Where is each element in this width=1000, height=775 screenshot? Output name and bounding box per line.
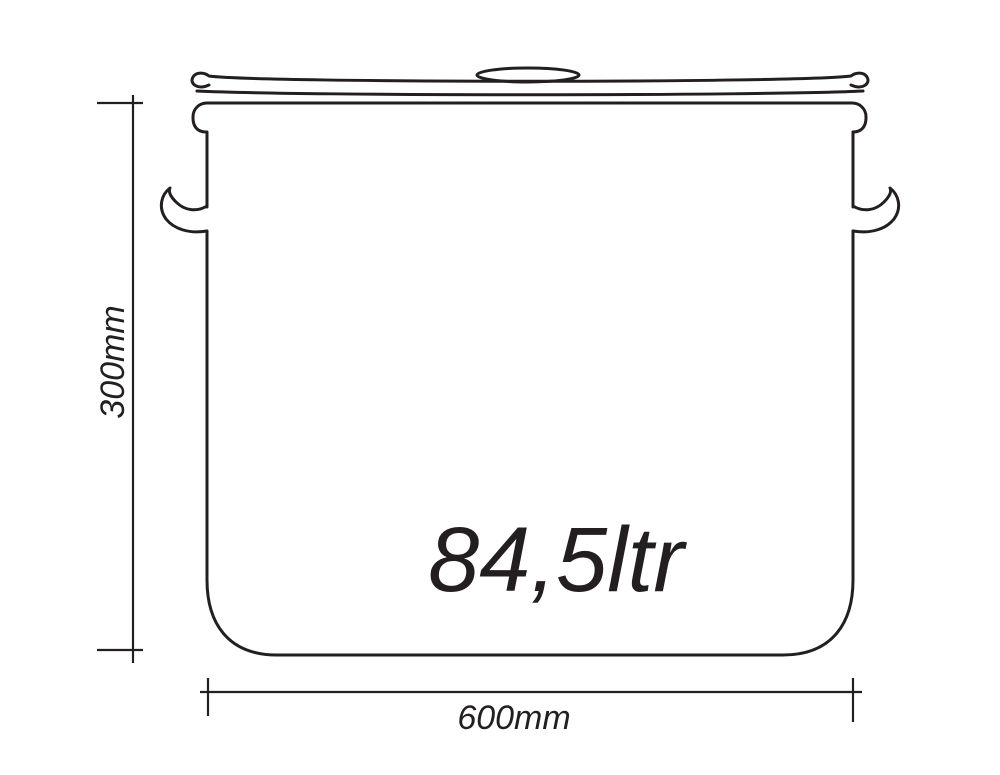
height-dimension: 300mm [94,95,143,663]
pot-handle-left [161,188,207,232]
pot-lid [192,68,868,95]
pot-rim [193,103,866,132]
lid-bottom-outline [197,91,863,95]
technical-drawing-canvas: 300mm 600mm 84,5ltr [0,0,1000,775]
capacity-label: 84,5ltr [428,509,687,611]
width-dimension: 600mm [200,678,862,737]
height-dimension-label: 300mm [94,305,132,418]
pot-handle-right [853,188,899,232]
stock-pot-drawing: 300mm 600mm 84,5ltr [0,0,1000,775]
width-dimension-label: 600mm [457,699,570,737]
lid-top-outline [192,73,868,87]
